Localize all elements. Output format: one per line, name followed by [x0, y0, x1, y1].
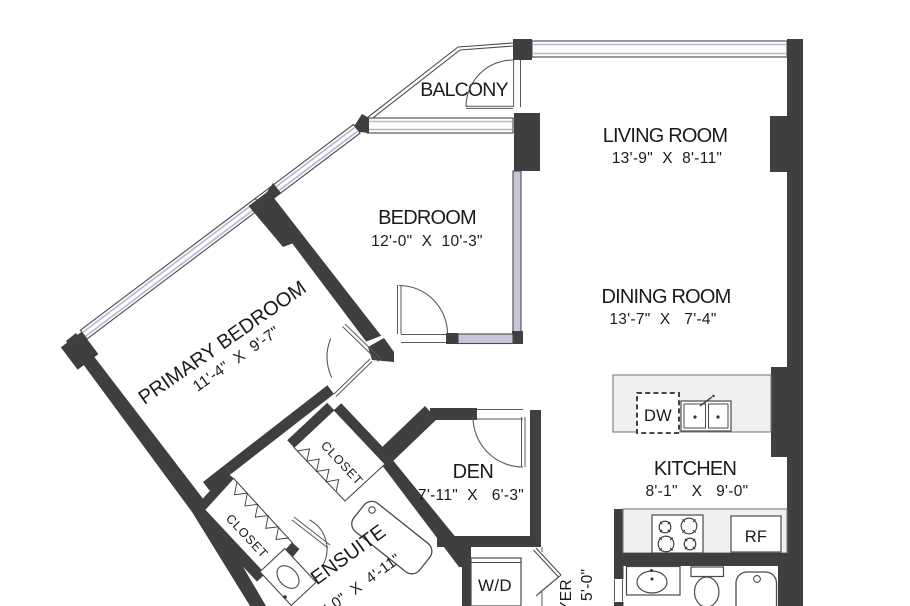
svg-text:LIVING ROOM: LIVING ROOM — [603, 125, 728, 147]
svg-text:13'-7" X 7'-4": 13'-7" X 7'-4" — [609, 311, 716, 328]
svg-text:RF: RF — [745, 528, 768, 546]
svg-text:DINING ROOM: DINING ROOM — [602, 286, 731, 308]
svg-text:FOYER: FOYER — [558, 579, 575, 606]
svg-text:8'-1" X 9'-0": 8'-1" X 9'-0" — [645, 483, 748, 500]
svg-text:7'-11" X 6'-3": 7'-11" X 6'-3" — [418, 487, 524, 504]
svg-text:DEN: DEN — [453, 461, 494, 483]
svg-text:13'-9" X 8'-11": 13'-9" X 8'-11" — [612, 150, 722, 167]
svg-text:W/D: W/D — [478, 576, 512, 595]
svg-text:DW: DW — [644, 407, 672, 425]
svg-text:BALCONY: BALCONY — [420, 79, 508, 101]
svg-text:KITCHEN: KITCHEN — [654, 458, 736, 480]
svg-text:12'-0" X 10'-3": 12'-0" X 10'-3" — [371, 233, 483, 250]
svg-text:5'-0": 5'-0" — [579, 569, 596, 601]
svg-text:BEDROOM: BEDROOM — [378, 207, 476, 229]
